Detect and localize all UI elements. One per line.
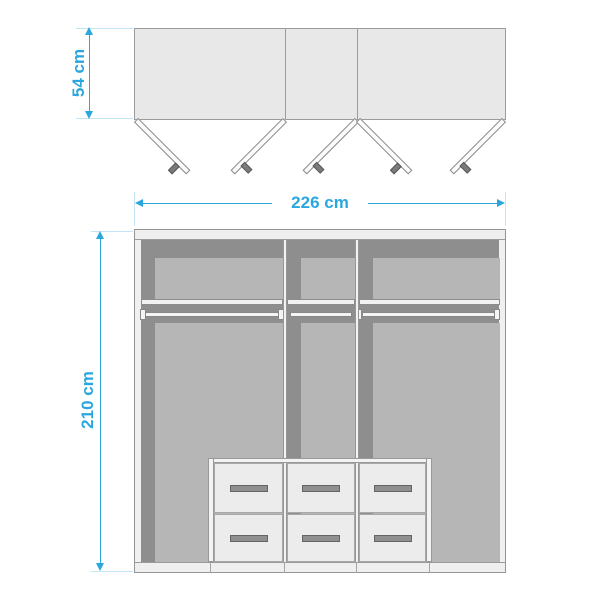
top-view-divider-1 — [285, 29, 286, 119]
top-view-divider-2 — [357, 29, 358, 119]
height-extension-line-bottom — [91, 571, 133, 572]
arrow-down-icon — [96, 563, 104, 571]
rail-bracket-icon — [494, 309, 500, 320]
bottom-joint-mark — [210, 563, 211, 573]
drawer-handle-icon — [302, 485, 340, 492]
door-handle-icon — [390, 162, 402, 174]
door-panel-1 — [134, 118, 191, 175]
hanging-rail-left — [145, 312, 279, 317]
shelf-right — [359, 299, 500, 305]
wardrobe-dimension-diagram: 54 cm 226 cm — [0, 0, 600, 600]
arrow-right-icon — [497, 199, 505, 207]
drawer-handle-icon — [374, 485, 412, 492]
drawer-handle-icon — [302, 535, 340, 542]
shelf-middle — [287, 299, 355, 305]
door-panel-4 — [356, 118, 413, 175]
rail-bracket-icon — [140, 309, 146, 320]
drawer-front — [214, 463, 283, 513]
door-handle-icon — [459, 162, 471, 174]
drawer-front — [359, 514, 426, 562]
drawer-front — [287, 463, 355, 513]
width-dimension-label: 226 cm — [272, 193, 368, 213]
drawer-front — [359, 463, 426, 513]
back-panel-top-right — [373, 258, 500, 299]
arrow-down-icon — [85, 111, 93, 119]
height-dimension-label: 210 cm — [77, 367, 99, 433]
door-panel-3 — [303, 118, 360, 175]
width-extension-line-right — [505, 192, 506, 226]
drawer-handle-icon — [230, 535, 268, 542]
hanging-rail-right — [362, 312, 497, 317]
bottom-joint-mark — [356, 563, 357, 573]
front-bottom-panel — [135, 562, 505, 572]
bottom-joint-mark — [284, 563, 285, 573]
drawer-unit-side-right — [426, 458, 432, 562]
door-panel-2 — [231, 118, 288, 175]
drawer-handle-icon — [374, 535, 412, 542]
back-panel-top-left — [155, 258, 283, 299]
height-dimension-line — [100, 237, 101, 567]
bottom-joint-mark — [429, 563, 430, 573]
door-panel-5 — [450, 118, 507, 175]
front-top-panel — [135, 230, 505, 240]
shelf-left — [141, 299, 283, 305]
door-handle-icon — [240, 162, 252, 174]
back-panel-top-middle — [301, 258, 355, 299]
drawer-front — [214, 514, 283, 562]
hanging-rail-middle — [290, 312, 352, 317]
door-handle-icon — [168, 162, 180, 174]
drawer-front — [287, 514, 355, 562]
arrow-up-icon — [85, 27, 93, 35]
door-handle-icon — [312, 162, 324, 174]
top-view-body — [134, 28, 506, 120]
front-view-body — [134, 229, 506, 573]
width-extension-line-left — [134, 192, 135, 226]
depth-dimension-line — [89, 33, 90, 113]
drawer-handle-icon — [230, 485, 268, 492]
depth-dimension-label: 54 cm — [69, 41, 89, 105]
arrow-up-icon — [96, 231, 104, 239]
arrow-left-icon — [135, 199, 143, 207]
